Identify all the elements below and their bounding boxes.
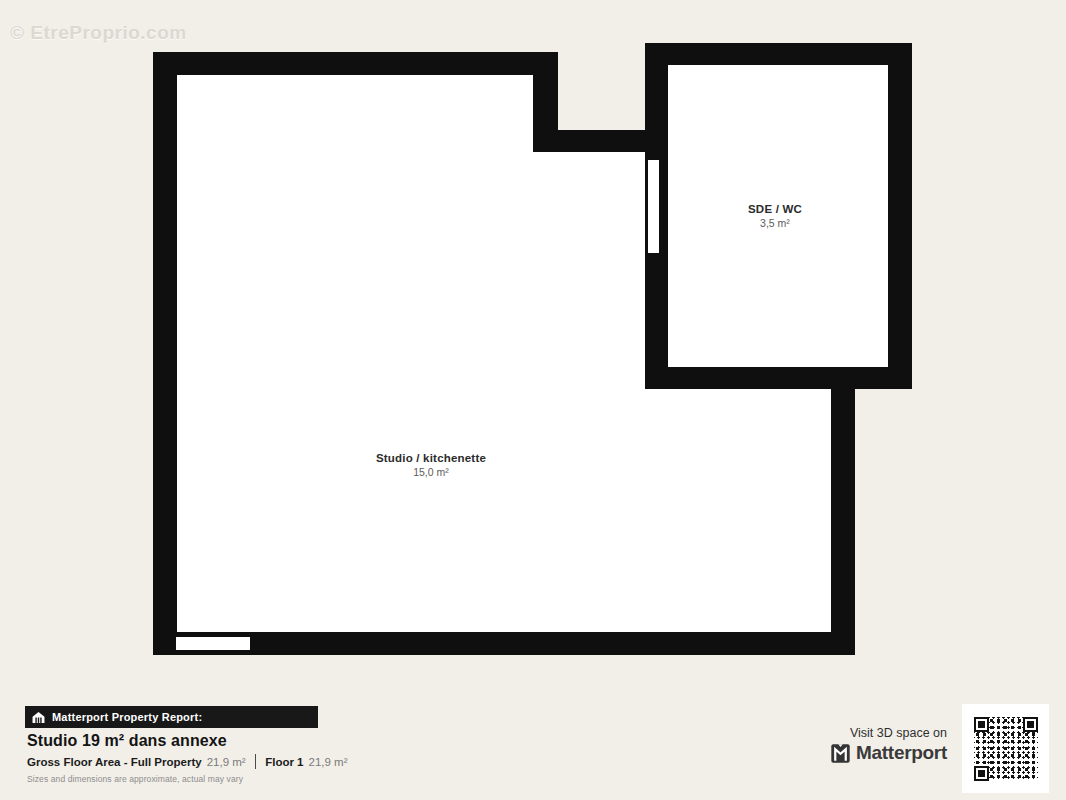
qr-finder-icon	[1023, 717, 1038, 732]
qr-finder-icon	[974, 717, 989, 732]
room-name: SDE / WC	[748, 202, 802, 217]
visit-3d-space-text: Visit 3D space on	[850, 726, 947, 740]
stat-label: Gross Floor Area - Full Property	[27, 756, 202, 768]
report-stats: Gross Floor Area - Full Property 21,9 m²…	[27, 754, 348, 769]
wall-sde-top	[645, 43, 912, 65]
room-name: Studio / kitchenette	[376, 451, 486, 466]
qr-code	[962, 704, 1049, 793]
qr-finder-icon	[974, 766, 989, 781]
wall-sde-right	[888, 43, 912, 388]
room-area: 15,0 m²	[376, 466, 486, 479]
wall-sde-bottom	[645, 367, 912, 389]
qr-pattern	[974, 717, 1038, 781]
report-badge-label: Matterport Property Report:	[52, 711, 202, 723]
report-badge-bar: Matterport Property Report:	[25, 706, 318, 728]
matterport-logo-icon	[830, 743, 851, 764]
watermark: © EtreProprio.com	[10, 22, 187, 44]
wall-main-right	[831, 367, 855, 655]
room-label-studio: Studio / kitchenette 15,0 m²	[376, 451, 486, 479]
matterport-logo: Matterport	[830, 742, 947, 764]
room-area: 3,5 m²	[748, 217, 802, 230]
wall-main-top	[153, 52, 558, 75]
stat-value: 21,9 m²	[207, 756, 246, 768]
floor-plan-report-page: © EtreProprio.com Studio / kitchenette 1…	[0, 0, 1066, 800]
stat-value: 21,9 m²	[309, 756, 348, 768]
matterport-wordmark: Matterport	[856, 742, 947, 764]
report-title: Studio 19 m² dans annexe	[27, 732, 227, 750]
window-opening-bottom	[176, 637, 250, 650]
wall-main-left	[153, 52, 177, 655]
house-icon	[32, 711, 45, 724]
room-label-sde-wc: SDE / WC 3,5 m²	[748, 202, 802, 230]
stat-label: Floor 1	[265, 756, 303, 768]
plan-notch	[558, 52, 645, 130]
stat-divider	[255, 754, 257, 769]
wall-main-bottom	[153, 632, 855, 655]
door-opening-sde	[648, 160, 659, 253]
report-disclaimer: Sizes and dimensions are approximate, ac…	[27, 774, 243, 784]
